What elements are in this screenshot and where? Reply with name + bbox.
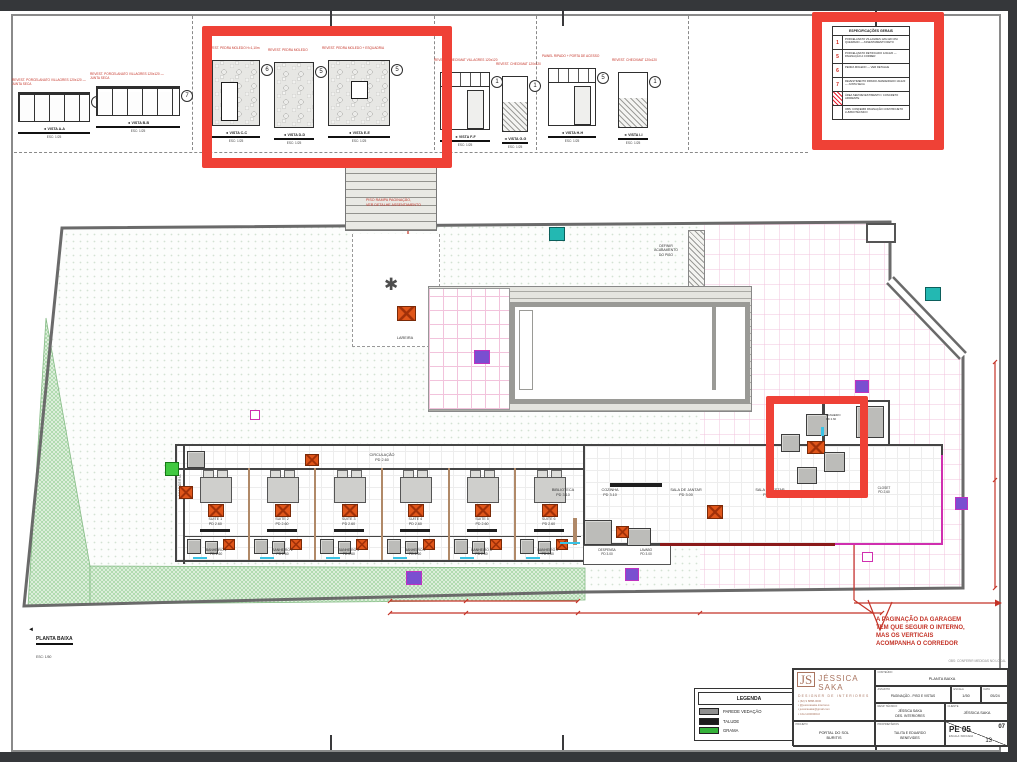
point-marker <box>862 552 873 562</box>
equipment-marker <box>275 504 291 517</box>
suite-room: SUITE 1 PD 2.60 <box>183 468 250 560</box>
legend-swatch <box>699 708 719 715</box>
legend-row: GRAMA <box>699 727 799 734</box>
detail-elevation-art <box>618 72 648 128</box>
detail-caption-scale: ESC: 1/25 <box>610 141 656 145</box>
legend-swatch <box>699 718 719 725</box>
drawing-viewer: REVEST. PORCELANATO VILLAGRES 120x120 — … <box>0 0 1017 762</box>
detail-elevation-art <box>18 92 90 122</box>
pool-divider-wall <box>712 307 716 390</box>
suite-label: SUITE 3 PD 2.60 <box>316 517 381 526</box>
cell-value: PORTAL DO SOL BURITIS <box>795 726 873 745</box>
shower-glass <box>526 557 540 559</box>
suite-room: SUITE 5 PD 2.60 <box>450 468 517 560</box>
equipment-marker <box>542 504 558 517</box>
detail-caption-title: ◄ VISTA H-H <box>540 131 604 135</box>
bed <box>267 477 299 503</box>
suite-label: SUITE 2 PD 2.60 <box>250 517 315 526</box>
detail-caption-scale: ESC: 1/25 <box>494 145 536 149</box>
detail-elevation-art <box>548 68 596 126</box>
legend-row: PAREDE VEDAÇÃO <box>699 708 799 715</box>
equipment-marker <box>342 504 358 517</box>
bed <box>467 477 499 503</box>
sheet-total: 13 <box>985 738 992 744</box>
detail-caption: ◄ VISTA B-B ESC: 1/25 <box>88 121 188 133</box>
magenta-wall <box>941 455 943 545</box>
tv-panel <box>467 529 497 532</box>
tv-panel <box>200 529 230 532</box>
date-cell: DATA 05/24 <box>981 686 1009 703</box>
tv-panel <box>267 529 297 532</box>
scale-bar <box>18 132 90 134</box>
legend-box: LEGENDA PAREDE VEDAÇÃO TALUDE GRAMA <box>694 688 804 741</box>
kitchen-island <box>584 520 612 545</box>
bathroom-labels-row: BANHEIRO 1 PD 2.60 BANHEIRO 2 PD 2.60 BA… <box>183 548 581 557</box>
detail-note: PAINEL RIPADO + PORTA DE ACESSO <box>542 55 618 59</box>
bathroom-wall <box>516 536 581 537</box>
tv-panel <box>400 529 430 532</box>
equipment-marker <box>616 526 629 538</box>
room-label-lareira: LAREIRA <box>380 336 430 341</box>
bathroom-label: BANHEIRO 6 PD 2.60 <box>515 548 581 557</box>
detail-view: REVEST. PORCELANATO VILLAGRES 120x120 — … <box>96 86 180 116</box>
bathroom-label: BANHEIRO 5 PD 2.60 <box>448 548 514 557</box>
detail-note: REVEST. PORCELANATO VILLAGRES 120x120 — … <box>12 79 88 87</box>
detail-caption-scale: ESC: 1/25 <box>540 139 604 143</box>
legend-label: TALUDE <box>723 719 739 724</box>
owners-cell: PROPRIETÁRIOS TALITA E EDUARDO BENEVIDES <box>875 721 945 747</box>
legend-title: LEGENDA <box>698 692 800 705</box>
detail-caption: ◄ VISTA A-A ESC: 1/25 <box>10 127 98 139</box>
cell-value: TALITA E EDUARDO BENEVIDES <box>877 726 943 745</box>
detail-view: REVEST. CHECKMAT 120x120 1 ◄ VISTA I-I E… <box>618 72 648 128</box>
magenta-wall <box>835 543 943 545</box>
detail-note: REVEST. CHECKMAT 120x120 <box>612 59 688 63</box>
brand-contact: ▪ CAU A000000-0 <box>798 712 871 716</box>
content-cell: CONTEÚDO PLANTA BAIXA <box>875 669 1009 686</box>
scale-bar <box>618 138 648 140</box>
suite-room: SUITE 3 PD 2.60 <box>316 468 383 560</box>
kitchen-island <box>627 528 651 546</box>
view-arrow-icon: ◄ <box>28 627 34 633</box>
legend-swatch <box>699 727 719 734</box>
detail-number-bubble: 1 <box>649 76 661 88</box>
shower-glass <box>193 557 207 559</box>
bathroom-wall <box>450 536 515 537</box>
bed <box>200 477 232 503</box>
cell-value: JÉSSICA SAKA <box>947 708 1007 719</box>
legend-label: GRAMA <box>723 728 738 733</box>
red-arrowhead <box>995 600 1002 607</box>
shower-glass <box>460 557 474 559</box>
room-label-cozinha: COZINHA PD 3.10 <box>588 488 632 498</box>
sheet-number-cell: PE 05 ESCALA: INDICADA 07 13 <box>945 721 1009 747</box>
title-block: JS JÉSSICA SAKA DESIGNER DE INTERIORES ▪… <box>792 668 1008 746</box>
tv-panel <box>334 529 364 532</box>
detail-elevation-art <box>96 86 180 116</box>
drain-marker <box>625 568 639 581</box>
gate-pillar <box>866 223 896 243</box>
room-label-lavabo: LAVABO PD 3.00 <box>628 548 664 556</box>
shower-glass <box>260 557 274 559</box>
detail-caption: ◄ VISTA G-G ESC: 1/25 <box>494 137 536 149</box>
suite-cells: SUITE 1 PD 2.60 SUITE 2 PD 2.60 <box>183 468 581 560</box>
talude-wall <box>660 543 835 546</box>
bathroom-wall <box>250 536 315 537</box>
room-label-despensa: DESPENSA PD 3.00 <box>586 548 628 556</box>
ramp-hatch <box>688 230 705 289</box>
project-cell: PROJETO PORTAL DO SOL BURITIS <box>793 721 875 747</box>
note-piso-rampa: PISO RAMPA PAGINAÇÃO, VER DETALHE ASSENT… <box>366 198 452 207</box>
detail-note: REVEST. CHECKMAT 120x120 <box>496 63 572 67</box>
detail-caption-title: ◄ VISTA B-B <box>88 121 188 125</box>
detail-number-bubble: 1 <box>529 80 541 92</box>
equipment-marker <box>305 454 319 466</box>
cell-value: 1/50 <box>953 691 979 701</box>
point-marker <box>250 410 260 420</box>
sheet-code-sub: ESCALA: INDICADA <box>949 735 973 738</box>
plan-caption: ◄ PLANTA BAIXA ESC: 1/50 <box>28 627 73 663</box>
cell-value: PLANTA BAIXA <box>877 674 1007 684</box>
room-label-circulacao: CIRCULAÇÃO PD 2.60 <box>327 453 437 463</box>
bathroom-label: BANHEIRO 4 PD 2.60 <box>382 548 448 557</box>
detail-view: REVEST. CHECKMAT 120x120 1 ◄ VISTA G-G E… <box>502 76 528 132</box>
suite-room: SUITE 6 PD 2.60 <box>516 468 581 560</box>
hydrant-marker <box>925 287 941 301</box>
drain-marker <box>406 571 422 585</box>
strip-divider <box>192 16 193 150</box>
room-label-jantar: SALA DE JANTAR PD 3.00 <box>658 488 714 498</box>
scale-cell: ESCALA 1/50 <box>951 686 981 703</box>
equipment-marker <box>408 504 424 517</box>
strip-divider <box>688 16 689 150</box>
drain-marker <box>855 380 869 393</box>
tree-icon: ✱ <box>384 276 398 293</box>
cell-value: PAGINAÇÃO - PISO E VISTAS <box>877 691 949 701</box>
bathroom-wall <box>383 536 448 537</box>
detail-note: REVEST. PORCELANATO VILLAGRES 120x120 — … <box>90 73 166 81</box>
detail-caption: ◄ VISTA H-H ESC: 1/25 <box>540 131 604 143</box>
suite-room: SUITE 2 PD 2.60 <box>250 468 317 560</box>
bed <box>334 477 366 503</box>
highlight-box-bathroom <box>766 396 868 498</box>
drain-marker <box>955 497 968 510</box>
brand-tagline: DESIGNER DE INTERIORES <box>797 692 871 699</box>
garden-marker <box>165 462 179 476</box>
suite-label: SUITE 6 PD 2.60 <box>516 517 581 526</box>
obs-note: OBS: CONFERIR MEDIDAS NO LOCAL <box>840 659 1006 663</box>
scale-bar <box>96 126 180 128</box>
detail-caption-title: ◄ VISTA I-I <box>610 133 656 137</box>
subject-cell: ASSUNTO PAGINAÇÃO - PISO E VISTAS <box>875 686 951 703</box>
detail-number-bubble: 7 <box>181 90 193 102</box>
tv-panel <box>534 529 564 532</box>
bathroom-label: BANHEIRO 2 PD 2.60 <box>249 548 315 557</box>
entry-stairs-paving <box>345 158 437 231</box>
sheet-number: 07 <box>998 724 1005 730</box>
room-label-biblioteca: BIBLIOTECA PD 3.10 <box>540 488 586 498</box>
note-definir-acabamento: DEFINIR ACABAMENTO DO PISO <box>638 244 694 257</box>
detail-caption-scale: ESC: 1/25 <box>10 135 98 139</box>
brand-contacts: ▪ (62) 9 8888-0000 ▪ @jessicasaka.interi… <box>797 699 871 716</box>
highlight-box-stone-details <box>202 26 452 168</box>
plan-caption-title: PLANTA BAIXA <box>36 636 73 645</box>
shower-glass <box>326 557 340 559</box>
equipment-marker <box>208 504 224 517</box>
brand-cell: JS JÉSSICA SAKA DESIGNER DE INTERIORES ▪… <box>793 669 875 721</box>
suite-label: SUITE 1 PD 2.60 <box>183 517 248 526</box>
bathroom-label: BANHEIRO 1 PD 2.60 <box>183 548 249 557</box>
suite-label: SUITE 5 PD 2.60 <box>450 517 515 526</box>
bathroom-wall <box>183 536 248 537</box>
scale-bar <box>502 142 528 144</box>
scale-bar <box>548 136 596 138</box>
room-label-closet: CLOSET PD 2.60 <box>862 486 906 494</box>
equipment-marker <box>475 504 491 517</box>
detail-view: PAINEL RIPADO + PORTA DE ACESSO 5 ◄ VIST… <box>548 68 596 126</box>
responsible-cell: RESP. TÉCNICO JÉSSICA SAKA DES. INTERIOR… <box>875 703 945 721</box>
legend-row: TALUDE <box>699 718 799 725</box>
detail-view: REVEST. PORCELANATO VILLAGRES 120x120 — … <box>18 92 90 122</box>
hydrant-marker <box>549 227 565 241</box>
sheet-code: PE 05 <box>949 725 971 734</box>
bathroom-wall <box>316 536 381 537</box>
detail-caption-title: ◄ VISTA A-A <box>10 127 98 131</box>
bed <box>400 477 432 503</box>
brand-monogram: JS <box>797 672 815 687</box>
drain-marker <box>474 350 490 364</box>
detail-caption: ◄ VISTA I-I ESC: 1/25 <box>610 133 656 145</box>
client-cell: CLIENTE JÉSSICA SAKA <box>945 703 1009 721</box>
cell-value: 05/24 <box>983 691 1007 701</box>
shower-glass <box>393 557 407 559</box>
suite-room: SUITE 4 PD 2.60 <box>383 468 450 560</box>
detail-caption-scale: ESC: 1/25 <box>88 129 188 133</box>
suite-label: SUITE 4 PD 2.60 <box>383 517 448 526</box>
kitchen-wall <box>573 518 577 545</box>
legend-label: PAREDE VEDAÇÃO <box>723 709 762 714</box>
equipment-marker <box>707 505 723 519</box>
detail-number-bubble: 5 <box>597 72 609 84</box>
bathroom-label: BANHEIRO 3 PD 2.60 <box>316 548 382 557</box>
cell-value: JÉSSICA SAKA DES. INTERIORES <box>877 708 943 719</box>
fireplace-marker <box>397 306 416 321</box>
kitchen-counter <box>610 483 662 487</box>
highlight-box-spec-table <box>812 12 944 150</box>
plan-caption-scale: ESC: 1/50 <box>36 655 51 659</box>
patio-tiles <box>428 288 510 410</box>
pool-steps <box>519 310 533 390</box>
detail-caption-title: ◄ VISTA G-G <box>494 137 536 141</box>
fixture <box>187 451 205 468</box>
detail-elevation-art <box>502 76 528 132</box>
glass-panel <box>560 542 580 544</box>
garage-pagination-note: A PAGINAÇÃO DA GARAGEM TEM QUE SEGUIR O … <box>876 616 1004 648</box>
